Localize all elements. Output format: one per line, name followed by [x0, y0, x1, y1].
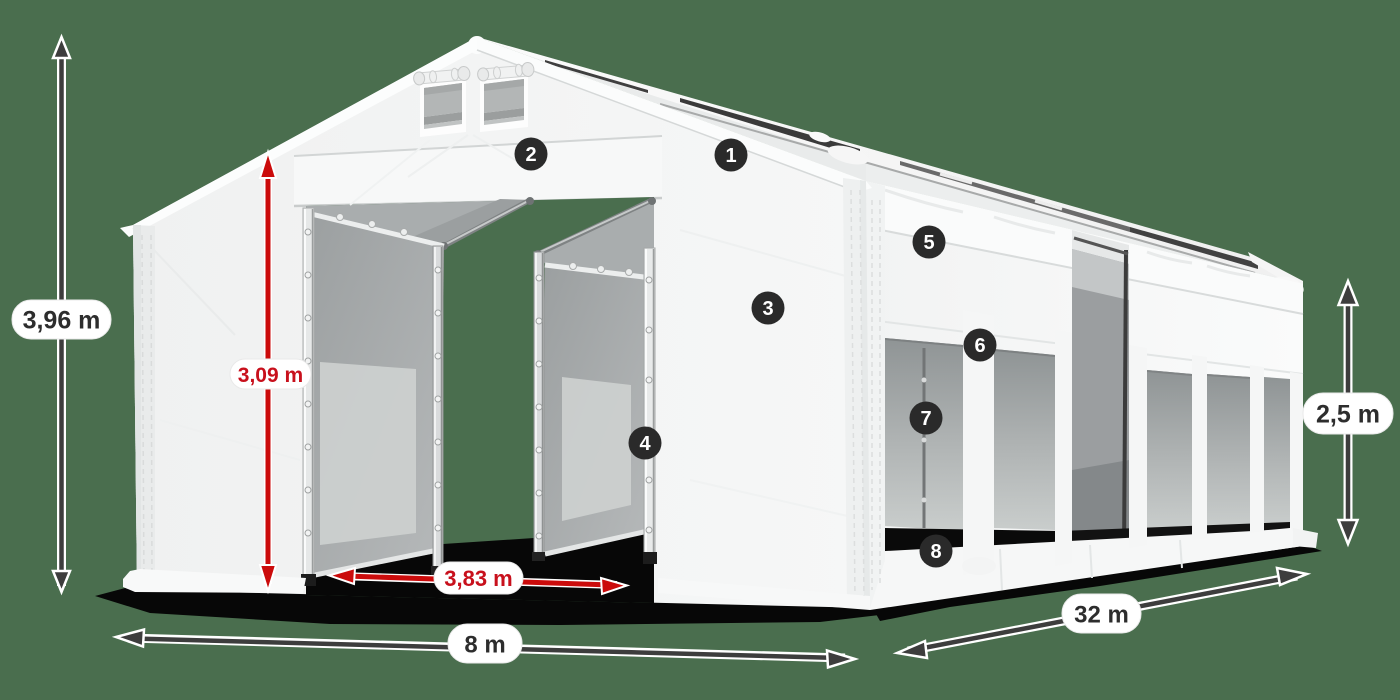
svg-text:4: 4 [639, 433, 651, 455]
svg-text:2: 2 [525, 144, 536, 166]
svg-text:8: 8 [930, 541, 941, 563]
svg-text:3,09 m: 3,09 m [238, 364, 303, 387]
svg-text:32 m: 32 m [1074, 602, 1129, 629]
svg-text:3,83 m: 3,83 m [444, 566, 513, 591]
svg-text:8 m: 8 m [464, 632, 505, 659]
svg-text:7: 7 [920, 408, 931, 430]
svg-text:6: 6 [974, 335, 985, 357]
svg-text:2,5 m: 2,5 m [1316, 401, 1380, 429]
svg-text:3: 3 [762, 298, 773, 320]
svg-text:5: 5 [923, 232, 934, 254]
svg-text:1: 1 [725, 145, 736, 167]
svg-text:3,96 m: 3,96 m [23, 307, 101, 335]
